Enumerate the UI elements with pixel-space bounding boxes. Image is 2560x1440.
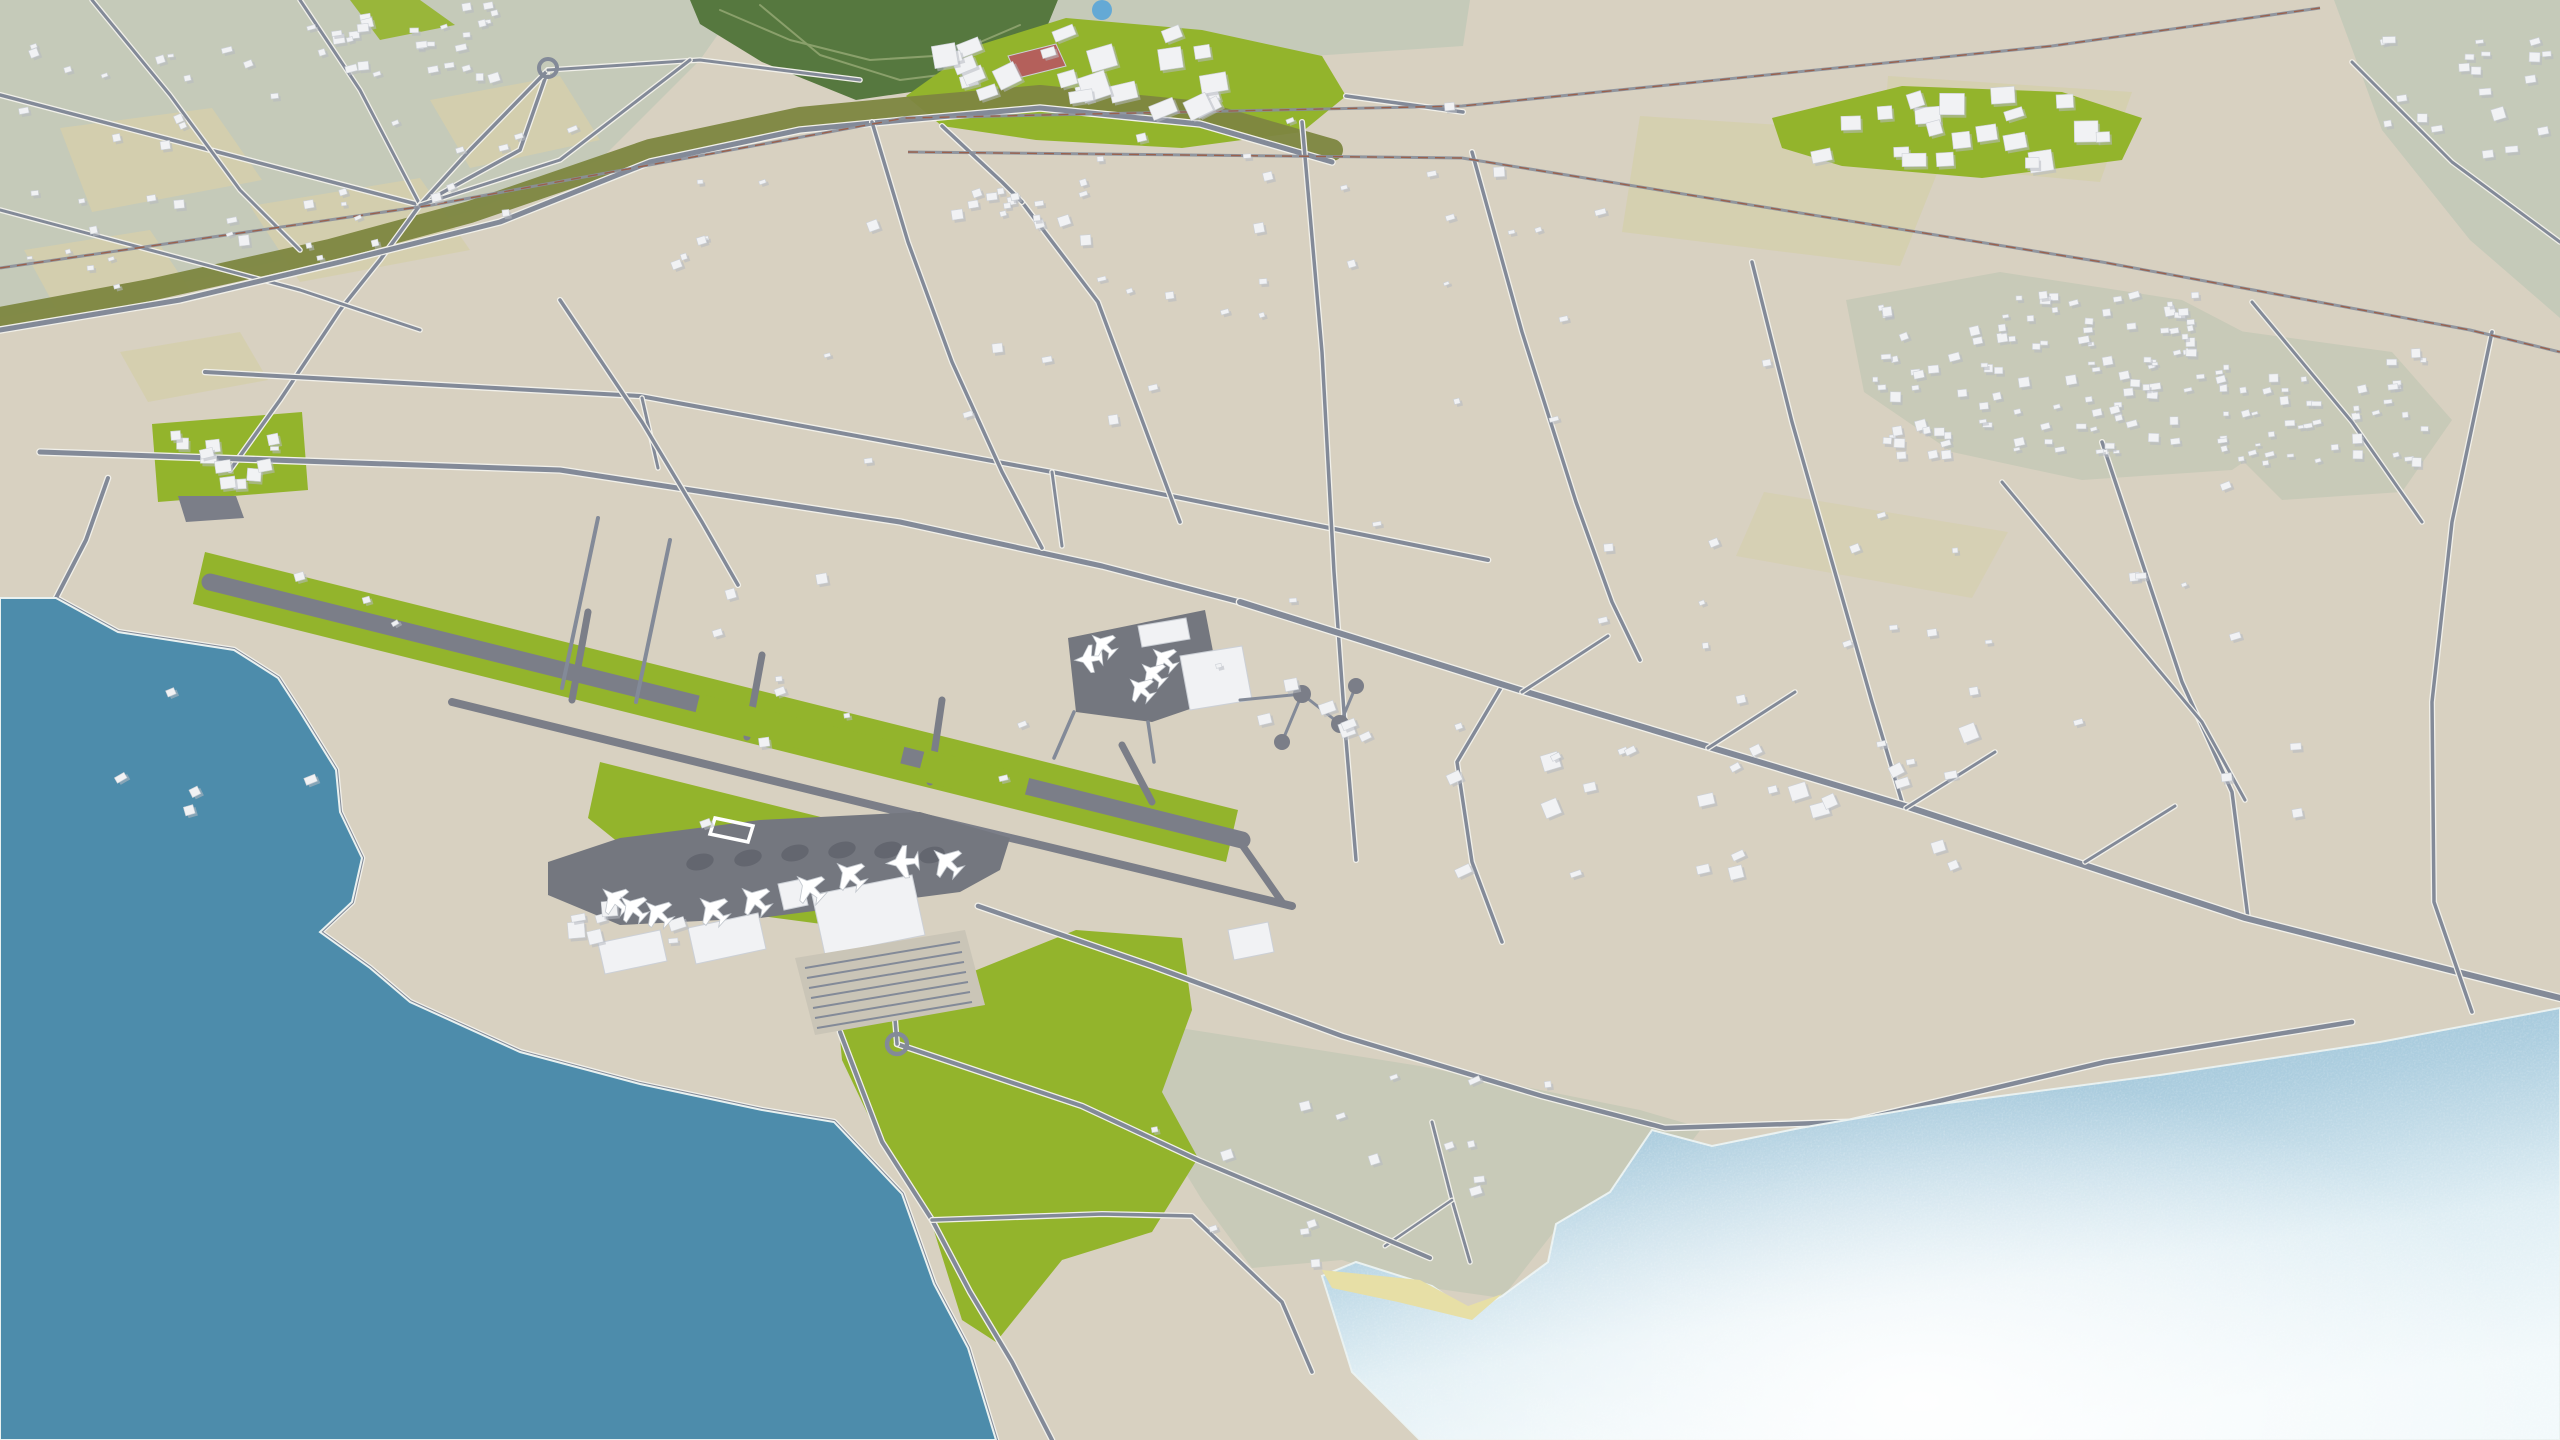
building xyxy=(1940,93,1965,114)
building xyxy=(2016,296,2022,301)
building xyxy=(2331,444,2339,450)
building xyxy=(1991,86,2016,104)
building xyxy=(1998,324,2006,332)
building xyxy=(2287,454,2294,458)
building xyxy=(2160,328,2168,333)
building xyxy=(2262,460,2268,465)
building xyxy=(758,737,769,747)
building xyxy=(1259,278,1267,284)
building xyxy=(1969,325,1980,336)
building xyxy=(410,28,419,33)
building xyxy=(1957,389,1967,397)
building xyxy=(2223,412,2228,416)
building xyxy=(1702,642,1708,648)
map-viewport[interactable] xyxy=(0,0,2560,1440)
building xyxy=(2170,438,2180,445)
building xyxy=(1882,306,1892,316)
building xyxy=(1467,1140,1475,1148)
building xyxy=(257,459,272,473)
building xyxy=(1762,359,1771,367)
building xyxy=(1604,543,1614,551)
building xyxy=(1892,426,1903,437)
building xyxy=(931,43,958,69)
building xyxy=(1979,402,1988,410)
building xyxy=(238,235,250,246)
building xyxy=(2431,125,2443,132)
building xyxy=(2182,334,2188,339)
building xyxy=(2085,318,2093,325)
building xyxy=(1165,291,1174,299)
building xyxy=(2221,773,2232,782)
building xyxy=(1985,640,1992,644)
building xyxy=(462,2,472,11)
building xyxy=(1493,167,1505,177)
building xyxy=(844,713,850,718)
building xyxy=(2292,808,2303,818)
building xyxy=(2387,359,2397,365)
building xyxy=(1289,598,1297,603)
service-pad-3 xyxy=(1274,734,1290,750)
building xyxy=(1444,102,1454,111)
building xyxy=(2238,456,2244,461)
building xyxy=(2102,356,2113,366)
building xyxy=(2215,370,2222,375)
building xyxy=(2009,336,2016,342)
building xyxy=(2144,357,2151,362)
building xyxy=(2268,431,2275,437)
building xyxy=(2384,120,2392,127)
building xyxy=(2018,377,2030,388)
building xyxy=(1300,1228,1309,1235)
building xyxy=(317,255,323,260)
building xyxy=(1158,46,1184,70)
building xyxy=(2187,325,2194,331)
building xyxy=(1952,131,1971,149)
building xyxy=(2479,88,2491,95)
building xyxy=(2123,388,2133,396)
building xyxy=(2178,308,2188,316)
building xyxy=(2223,365,2228,370)
building xyxy=(2402,412,2408,418)
building xyxy=(1969,687,1979,696)
building xyxy=(341,202,346,206)
building xyxy=(2421,426,2428,431)
building xyxy=(112,133,121,142)
building xyxy=(2045,439,2053,444)
building xyxy=(1253,222,1265,233)
building xyxy=(1199,72,1228,95)
building xyxy=(1216,663,1222,668)
building xyxy=(2027,315,2034,321)
building xyxy=(2196,374,2204,379)
building xyxy=(306,242,312,248)
building xyxy=(1994,367,2002,374)
building xyxy=(27,256,32,259)
building xyxy=(2459,63,2470,72)
pond-north xyxy=(1092,0,1112,20)
building xyxy=(2074,121,2098,142)
building xyxy=(31,190,39,195)
building xyxy=(2187,319,2195,325)
building xyxy=(502,209,510,216)
building xyxy=(2388,384,2398,390)
building xyxy=(2465,54,2474,60)
service-pad-4 xyxy=(1348,678,1364,694)
building xyxy=(2085,396,2092,402)
building xyxy=(2298,425,2304,429)
building xyxy=(1912,385,1919,390)
building xyxy=(2397,95,2408,103)
building xyxy=(2280,396,2289,405)
building-shadow xyxy=(2115,453,2121,456)
building xyxy=(1474,1176,1485,1183)
building xyxy=(1736,694,1747,704)
building xyxy=(2417,114,2427,123)
building xyxy=(371,239,379,247)
runway-threshold-pad xyxy=(178,496,244,522)
building xyxy=(2482,150,2494,159)
building xyxy=(992,343,1003,353)
building xyxy=(1003,203,1010,209)
building xyxy=(2052,307,2058,313)
building xyxy=(1453,398,1460,405)
building xyxy=(1927,629,1937,637)
building xyxy=(483,2,493,10)
building xyxy=(1284,678,1299,692)
building xyxy=(267,433,280,446)
building xyxy=(1878,385,1886,390)
building xyxy=(184,75,192,82)
building xyxy=(357,23,369,32)
building xyxy=(2384,399,2393,404)
building xyxy=(1972,337,1982,345)
map-render xyxy=(0,0,2560,1440)
building xyxy=(1080,235,1091,246)
building xyxy=(427,42,435,46)
building xyxy=(1923,426,1931,434)
building xyxy=(1979,419,1987,423)
building xyxy=(697,180,703,184)
building xyxy=(1010,193,1019,201)
building xyxy=(2148,433,2159,442)
building xyxy=(1889,625,1897,630)
building xyxy=(303,200,314,210)
building xyxy=(463,32,470,37)
building xyxy=(2353,406,2359,411)
building xyxy=(2529,52,2540,62)
building xyxy=(1544,1081,1551,1088)
building xyxy=(174,200,185,209)
building xyxy=(271,93,279,99)
building xyxy=(2255,443,2260,446)
building xyxy=(478,19,486,27)
building xyxy=(160,140,171,150)
building xyxy=(2025,158,2039,168)
building xyxy=(476,73,483,80)
building xyxy=(2311,401,2321,406)
building xyxy=(2167,302,2173,307)
building xyxy=(1906,759,1915,766)
building xyxy=(2130,379,2140,387)
building xyxy=(1928,365,1939,374)
building xyxy=(2096,132,2110,143)
building xyxy=(2505,146,2518,153)
building xyxy=(2411,348,2420,357)
building xyxy=(2357,384,2367,393)
building xyxy=(168,54,174,58)
building xyxy=(2040,341,2047,345)
building xyxy=(2285,420,2295,426)
building xyxy=(864,458,873,464)
building xyxy=(1881,354,1891,359)
building xyxy=(214,460,231,474)
building xyxy=(2076,424,2086,429)
building xyxy=(668,938,678,944)
building xyxy=(2152,362,2158,366)
building xyxy=(1934,428,1944,436)
building xyxy=(2471,67,2481,75)
building xyxy=(2412,458,2422,467)
building xyxy=(2127,323,2137,330)
building xyxy=(2032,343,2040,349)
building xyxy=(816,573,828,585)
building xyxy=(968,200,979,209)
building xyxy=(1894,438,1905,447)
building xyxy=(1981,363,1988,367)
building xyxy=(270,447,278,451)
building xyxy=(2113,296,2122,302)
building xyxy=(1243,154,1251,159)
building xyxy=(171,431,181,441)
building xyxy=(1873,377,1878,382)
building xyxy=(2135,573,2146,579)
building xyxy=(1151,1127,1158,1133)
building xyxy=(331,30,342,36)
building xyxy=(2217,438,2227,444)
building xyxy=(358,61,369,70)
building xyxy=(1108,414,1119,425)
building xyxy=(1877,106,1892,120)
building xyxy=(416,41,428,48)
building xyxy=(2102,309,2111,317)
building xyxy=(89,226,98,234)
building xyxy=(2039,291,2048,299)
building xyxy=(1890,392,1901,402)
building xyxy=(1841,116,1861,130)
building xyxy=(1952,548,1958,553)
building xyxy=(2537,126,2549,135)
building xyxy=(78,198,85,203)
building xyxy=(1944,432,1951,439)
building xyxy=(2221,445,2228,452)
building xyxy=(2065,374,2077,385)
building xyxy=(2269,374,2278,382)
building xyxy=(2105,443,2115,449)
building xyxy=(2475,39,2483,43)
building xyxy=(2353,450,2363,459)
building xyxy=(1883,437,1892,444)
building xyxy=(1936,152,1954,167)
building xyxy=(1194,44,1211,59)
building xyxy=(997,188,1004,195)
building xyxy=(587,929,604,945)
building xyxy=(2290,743,2301,750)
building xyxy=(2191,292,2199,298)
building xyxy=(986,192,997,200)
building xyxy=(1311,1259,1320,1267)
building xyxy=(2525,75,2536,84)
building xyxy=(2301,376,2307,381)
building xyxy=(2088,362,2095,365)
building xyxy=(2119,370,2130,380)
building xyxy=(2240,387,2247,394)
building xyxy=(2542,51,2551,57)
building xyxy=(2352,434,2362,444)
building xyxy=(775,676,782,681)
building xyxy=(2096,449,2104,454)
building xyxy=(220,476,236,489)
building xyxy=(444,62,454,68)
building xyxy=(1896,452,1906,460)
building xyxy=(2056,94,2074,108)
building xyxy=(146,195,156,202)
building xyxy=(1902,153,1926,166)
building xyxy=(1941,450,1952,460)
building xyxy=(1097,156,1104,161)
building xyxy=(2143,384,2150,390)
building xyxy=(680,253,687,260)
building xyxy=(2083,327,2092,333)
building xyxy=(1928,450,1939,459)
building xyxy=(87,265,94,270)
building xyxy=(951,209,964,220)
building xyxy=(1976,124,1998,142)
building xyxy=(2002,314,2009,318)
building xyxy=(2092,367,2100,372)
building xyxy=(2170,417,2178,425)
building xyxy=(1033,215,1040,222)
building xyxy=(2383,36,2396,43)
building xyxy=(1992,392,2001,401)
building xyxy=(2282,388,2289,392)
building xyxy=(1034,200,1043,206)
building xyxy=(2481,52,2490,56)
